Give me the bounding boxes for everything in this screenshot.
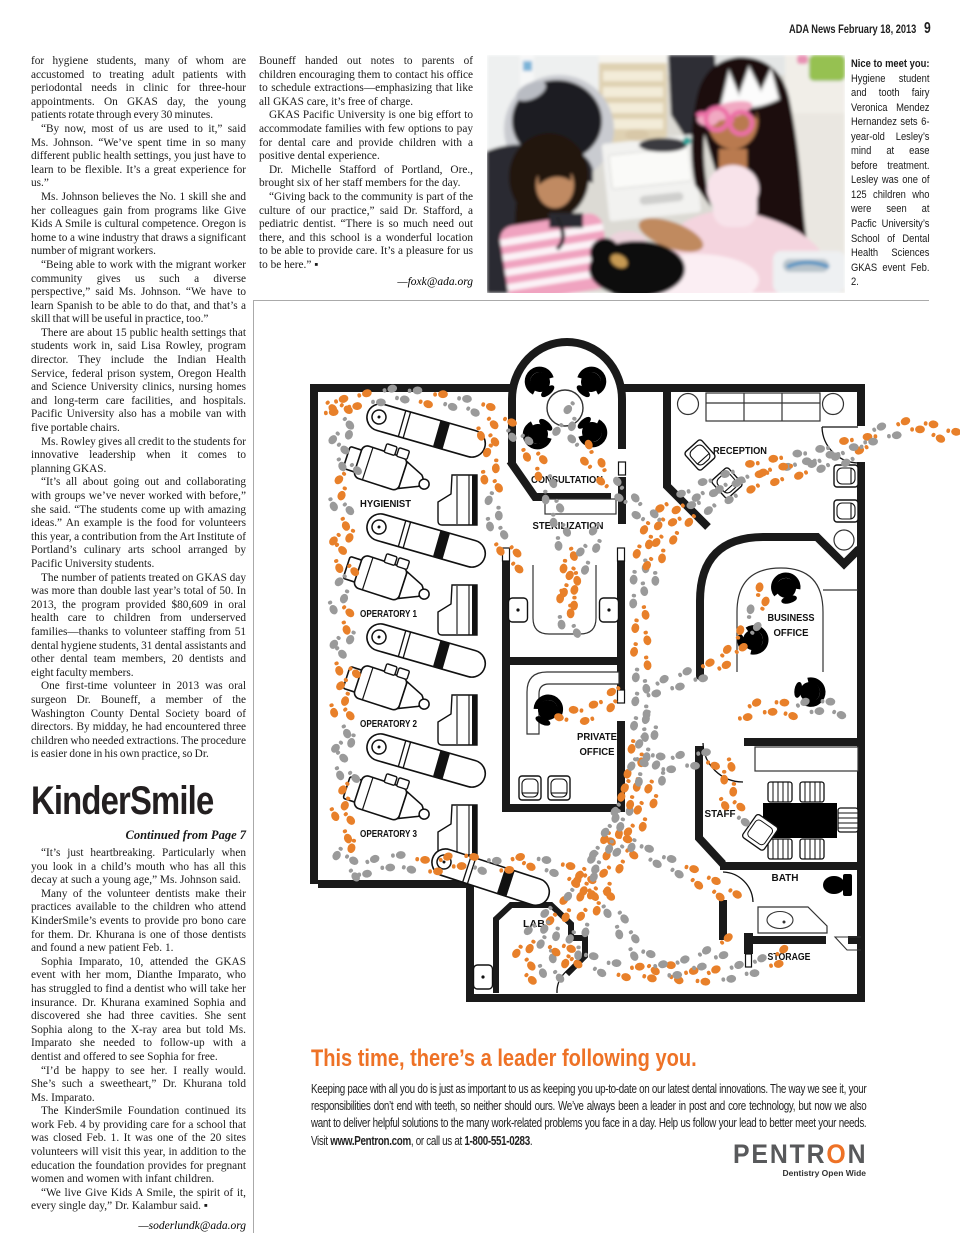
svg-text:OFFICE: OFFICE [580, 746, 615, 758]
svg-text:HYGIENIST: HYGIENIST [360, 498, 412, 510]
svg-text:STORAGE: STORAGE [768, 951, 811, 963]
svg-text:OPERATORY 1: OPERATORY 1 [360, 608, 417, 620]
svg-text:OFFICE: OFFICE [774, 627, 809, 639]
svg-text:STAFF: STAFF [705, 808, 737, 820]
svg-text:PRIVATE: PRIVATE [577, 731, 617, 743]
svg-text:OPERATORY 3: OPERATORY 3 [360, 828, 417, 840]
svg-text:RECEPTION: RECEPTION [713, 445, 767, 457]
svg-text:BUSINESS: BUSINESS [768, 612, 815, 624]
svg-text:OPERATORY 2: OPERATORY 2 [360, 718, 417, 730]
svg-text:BATH: BATH [772, 872, 799, 884]
